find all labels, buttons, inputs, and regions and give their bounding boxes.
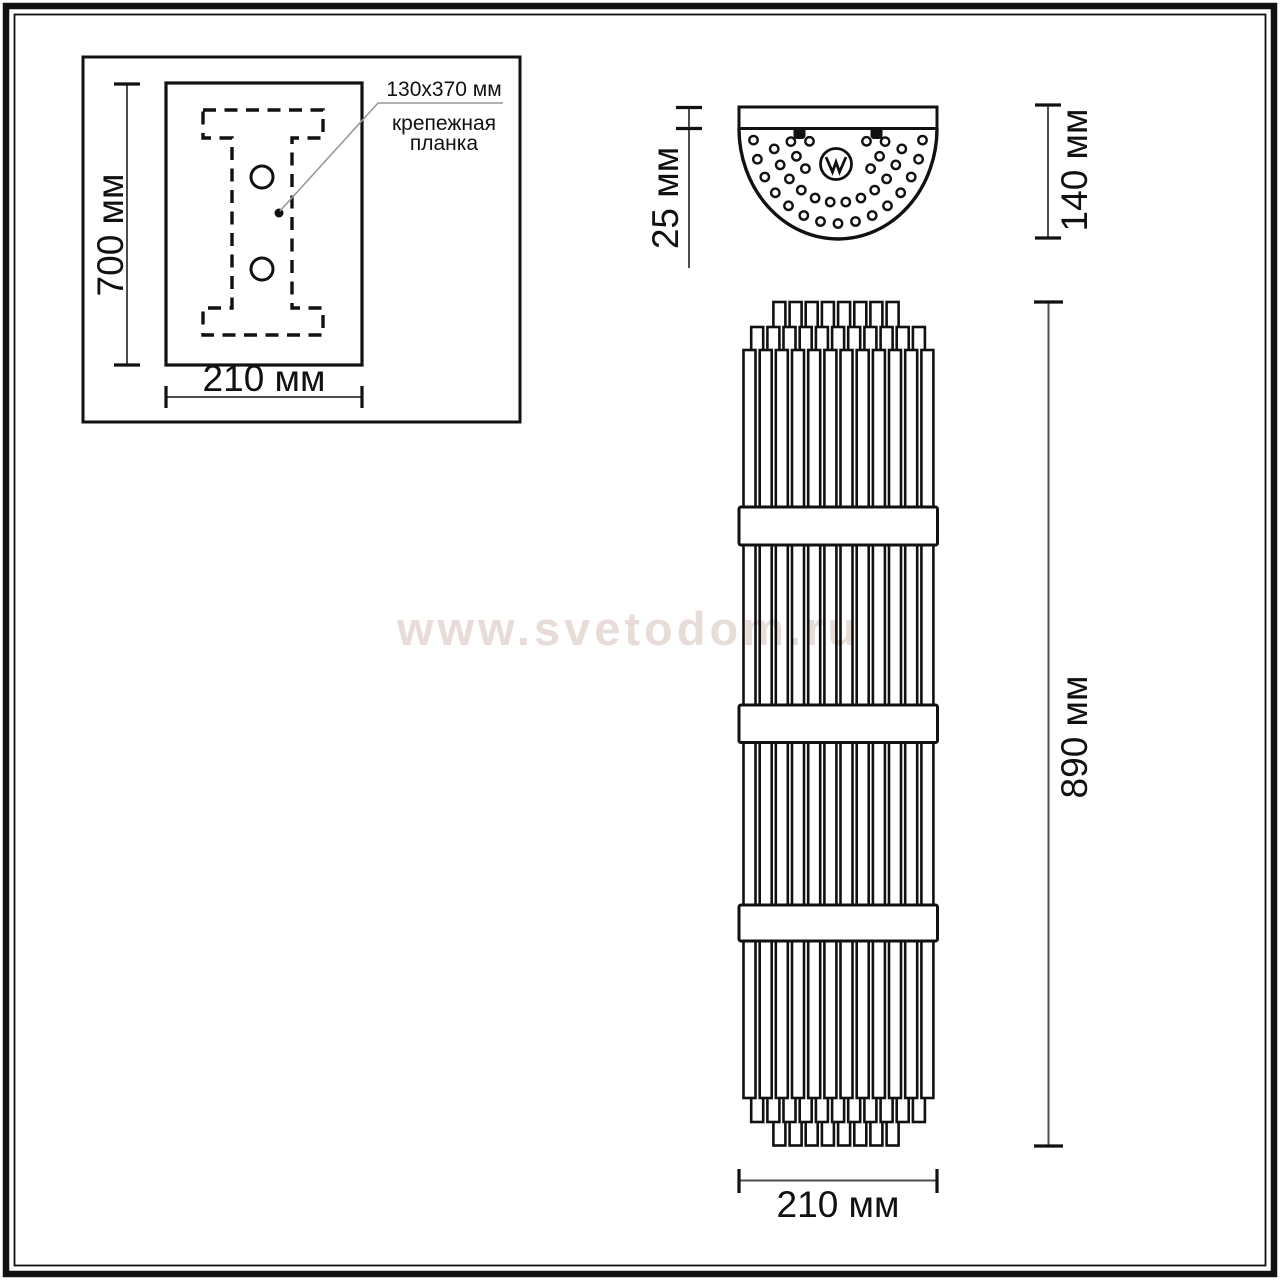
band-middle xyxy=(739,705,938,743)
panel-height-label: 700 мм xyxy=(90,174,131,297)
crystal-dot xyxy=(897,189,905,197)
crystal-dot xyxy=(866,164,874,172)
crystal-dot xyxy=(792,152,800,160)
crystal-dot xyxy=(907,173,915,181)
crystal-dot xyxy=(918,136,926,144)
crystal-dot xyxy=(797,186,805,194)
crystal-dot xyxy=(761,173,769,181)
lamp-technical-drawing: 130x370 мм крепежная планка 700 мм 210 м… xyxy=(0,0,1280,1280)
crystal-dot xyxy=(770,145,778,153)
lamp-symbol-icon xyxy=(821,149,852,180)
crystal-dot xyxy=(851,217,859,225)
crystal-dot xyxy=(868,211,876,219)
crystal-dot xyxy=(785,175,793,183)
backplate-top-view xyxy=(739,107,937,129)
plate-depth-label: 25 мм xyxy=(645,147,686,249)
crystal-dot xyxy=(826,198,834,206)
crystal-dot xyxy=(801,164,809,172)
top-view: 25 мм 140 мм xyxy=(645,105,1095,268)
crystal-dot xyxy=(871,186,879,194)
mounting-plate-view: 130x370 мм крепежная планка 700 мм 210 м… xyxy=(83,57,520,422)
wall-plate-outline xyxy=(166,83,362,365)
crystal-dot xyxy=(862,137,870,145)
crystal-dot xyxy=(842,198,850,206)
crystal-dot xyxy=(776,161,784,169)
drawing-svg: 130x370 мм крепежная планка 700 мм 210 м… xyxy=(0,0,1280,1280)
band-top xyxy=(739,507,938,545)
crystal-dot xyxy=(914,155,922,163)
screw-hole-top xyxy=(251,166,273,188)
crystal-dot xyxy=(892,161,900,169)
crystal-dot xyxy=(811,194,819,202)
crystal-dot xyxy=(805,137,813,145)
screw-hole-bottom xyxy=(251,258,273,280)
crystal-dot xyxy=(883,202,891,210)
total-depth-label: 140 мм xyxy=(1054,109,1095,232)
strap-size-label: 130x370 мм xyxy=(386,78,501,101)
lamp-height-label: 890 мм xyxy=(1054,676,1095,799)
crystal-dot xyxy=(816,217,824,225)
crystal-dot xyxy=(875,152,883,160)
mount-tab-left xyxy=(794,129,806,140)
crystal-dot xyxy=(881,137,889,145)
crystal-dot xyxy=(857,194,865,202)
leader-dot xyxy=(275,209,284,218)
strap-name-label-2: планка xyxy=(410,132,479,155)
mount-tab-right xyxy=(871,129,883,140)
crystal-dot xyxy=(787,137,795,145)
front-view: 890 мм 210 мм xyxy=(739,302,1095,1225)
crystal-dot xyxy=(898,145,906,153)
crystal-dot xyxy=(784,202,792,210)
crystal-dot xyxy=(834,219,842,227)
crystal-dot xyxy=(800,211,808,219)
crystal-dot xyxy=(749,136,757,144)
crystal-dot xyxy=(771,189,779,197)
crystal-dot xyxy=(882,175,890,183)
crystal-dot xyxy=(753,155,761,163)
band-bottom xyxy=(739,905,938,941)
panel-width-label: 210 мм xyxy=(203,358,326,399)
lamp-width-label: 210 мм xyxy=(777,1184,900,1225)
